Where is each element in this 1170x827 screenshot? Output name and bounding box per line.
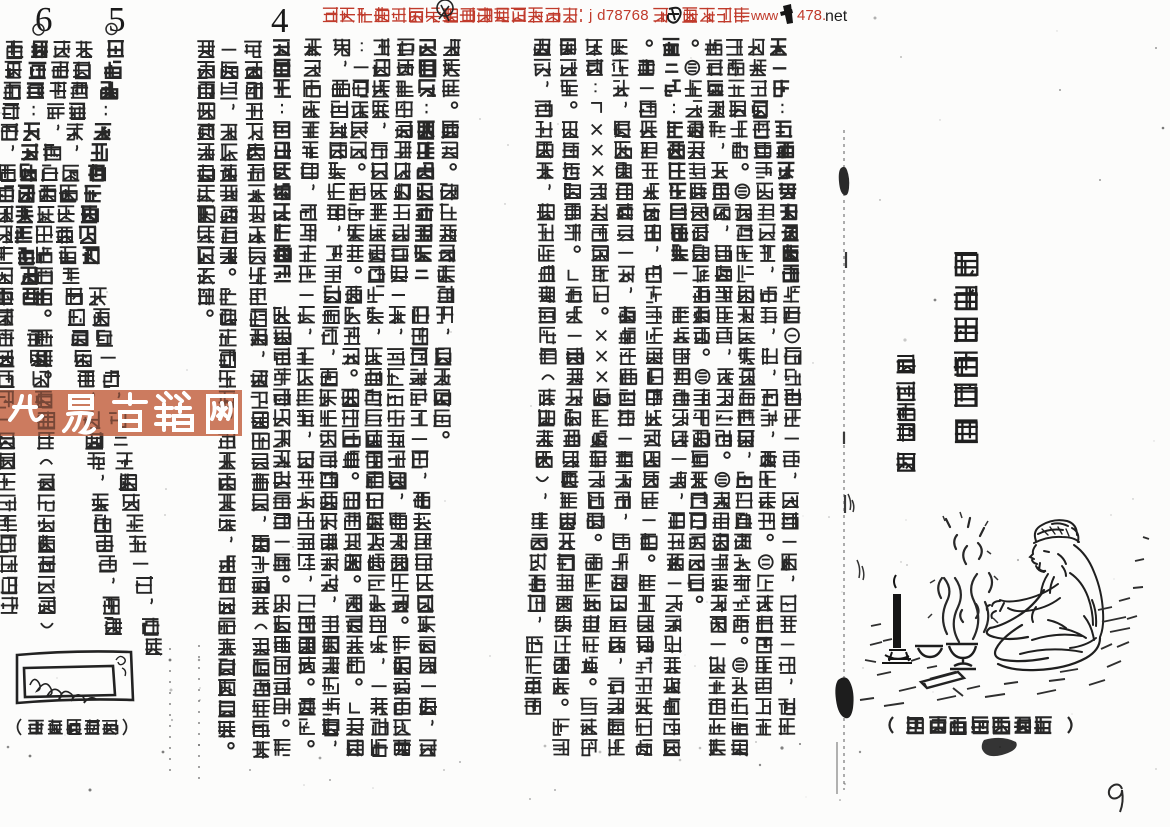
svg-text:4: 4 [271,1,289,40]
svg-text:478.: 478. [797,7,826,24]
svg-text:6: 6 [35,0,53,39]
svg-text:www: www [750,8,779,23]
svg-text:j d78768: j d78768 [588,7,649,24]
svg-text:5: 5 [108,0,126,39]
svg-text:net: net [825,8,848,25]
